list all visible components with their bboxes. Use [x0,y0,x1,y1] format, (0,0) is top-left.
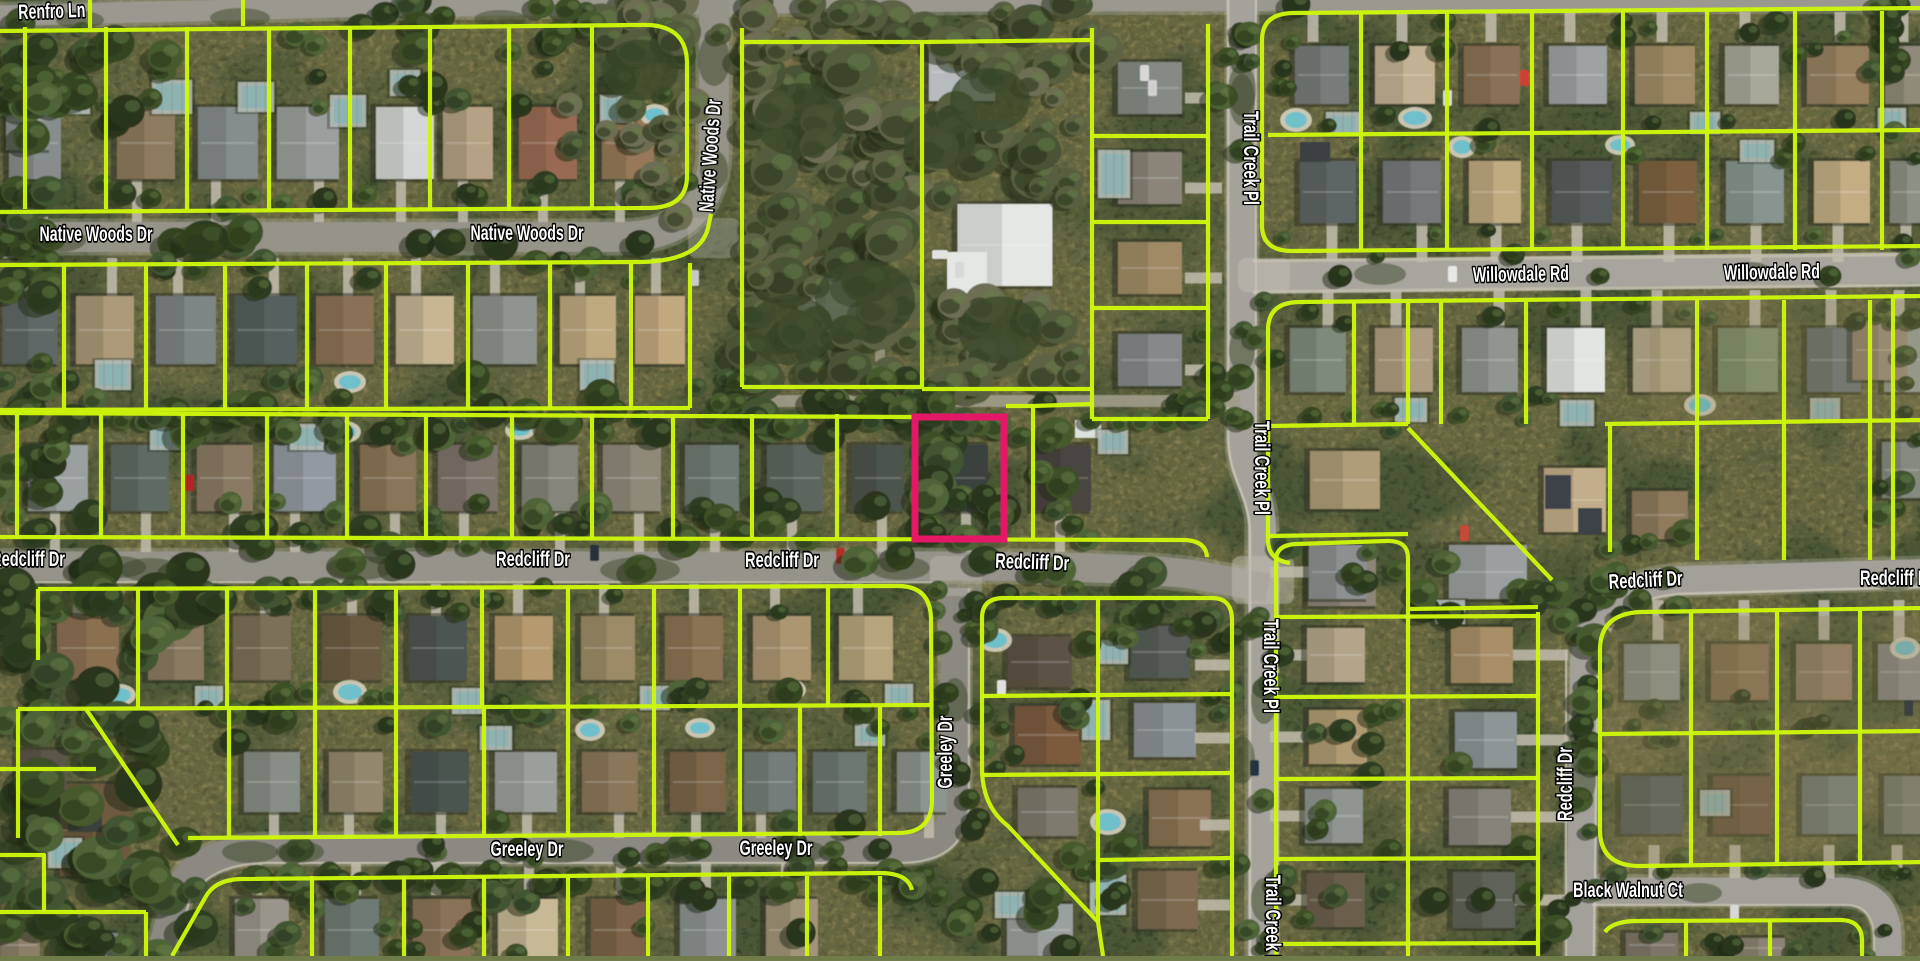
svg-text:Black Walnut Ct: Black Walnut Ct [1573,879,1683,902]
svg-text:Greeley Dr: Greeley Dr [491,838,564,861]
svg-text:Greeley Dr: Greeley Dr [740,837,813,860]
svg-text:Trail Creek Pl: Trail Creek Pl [1259,619,1282,713]
svg-text:Redcliff Dr: Redcliff Dr [1608,567,1683,594]
svg-text:Native Woods Dr: Native Woods Dr [471,222,584,245]
svg-text:Redcliff Dr: Redcliff Dr [745,549,819,572]
svg-text:Redcliff Dr: Redcliff Dr [0,548,65,571]
svg-text:Renfro Ln: Renfro Ln [18,0,86,24]
svg-text:Willowdale Rd: Willowdale Rd [1473,262,1569,287]
svg-text:Willowdale Rd: Willowdale Rd [1724,260,1820,285]
svg-text:Trail Creek Pl: Trail Creek Pl [1250,421,1273,515]
svg-text:Redcliff Dr: Redcliff Dr [1860,567,1920,590]
svg-text:Trail Creek Pl: Trail Creek Pl [1239,111,1262,205]
svg-text:Trail Creek Pl: Trail Creek Pl [1261,875,1284,956]
svg-text:Native Woods Dr: Native Woods Dr [40,223,153,246]
svg-text:Greeley Dr: Greeley Dr [934,716,957,789]
svg-text:Redcliff Dr: Redcliff Dr [496,548,570,571]
svg-text:Redcliff Dr: Redcliff Dr [1554,747,1577,821]
svg-text:Redcliff Dr: Redcliff Dr [995,550,1070,576]
